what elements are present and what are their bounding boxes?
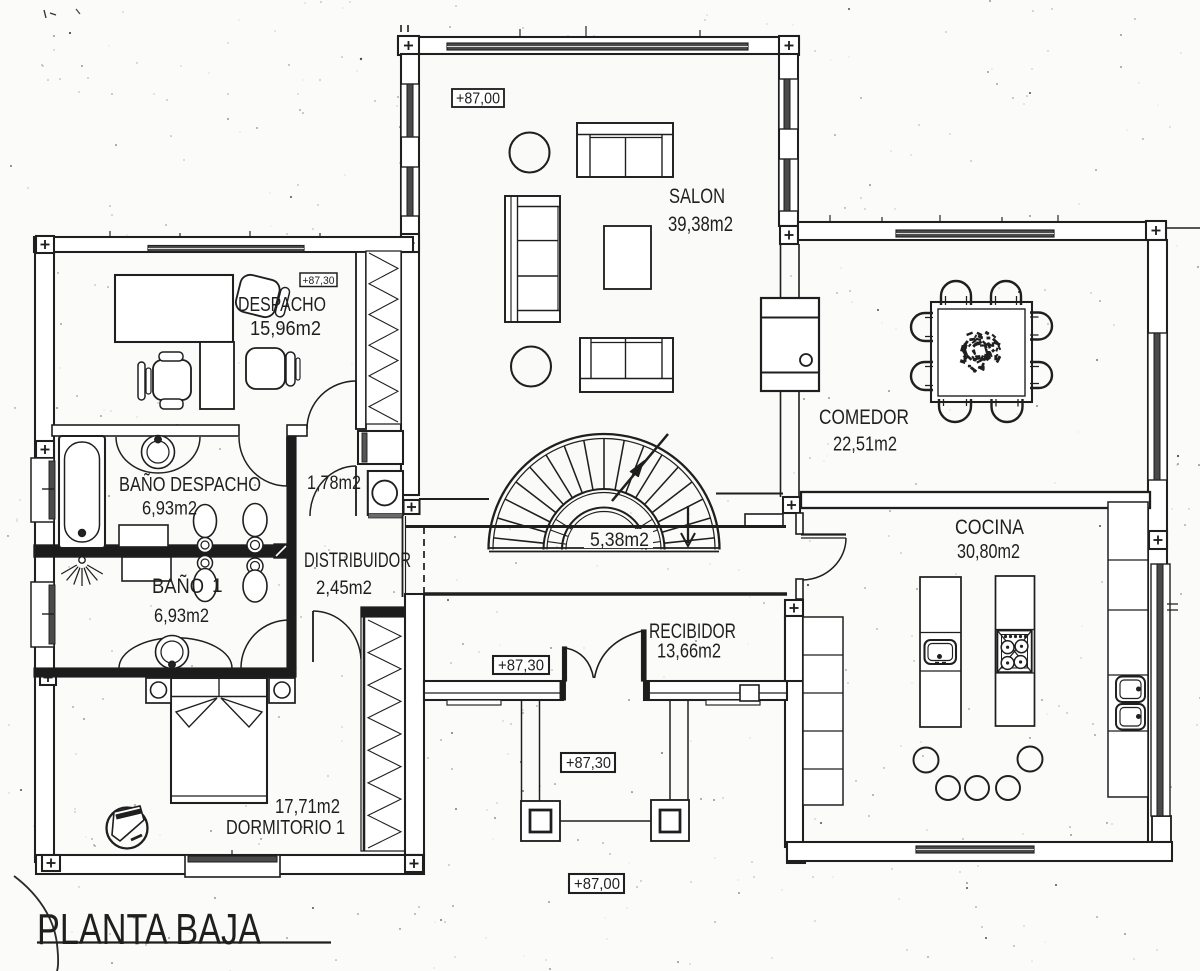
- svg-text:+87,30: +87,30: [303, 275, 335, 287]
- svg-text:1,78m2: 1,78m2: [307, 473, 361, 494]
- svg-text:17,71m2: 17,71m2: [275, 796, 340, 818]
- svg-text:6,93m2: 6,93m2: [142, 499, 197, 520]
- svg-text:5,38m2: 5,38m2: [590, 530, 649, 551]
- svg-text:COMEDOR: COMEDOR: [819, 406, 909, 429]
- svg-text:BAÑO: BAÑO: [152, 574, 204, 598]
- svg-text:DISTRIBUIDOR: DISTRIBUIDOR: [304, 548, 411, 572]
- svg-text:22,51m2: 22,51m2: [833, 434, 897, 456]
- svg-text:+87,00: +87,00: [456, 91, 500, 108]
- svg-text:SALON: SALON: [669, 185, 725, 208]
- svg-text:DORMITORIO 1: DORMITORIO 1: [226, 817, 345, 839]
- svg-text:+87,00: +87,00: [574, 876, 620, 893]
- svg-text:30,80m2: 30,80m2: [957, 541, 1020, 563]
- svg-text:COCINA: COCINA: [955, 516, 1024, 539]
- svg-text:BAÑO DESPACHO: BAÑO DESPACHO: [119, 472, 261, 496]
- svg-text:+87,30: +87,30: [566, 755, 611, 772]
- svg-text:39,38m2: 39,38m2: [668, 213, 733, 236]
- svg-text:PLANTA BAJA: PLANTA BAJA: [37, 905, 262, 954]
- svg-text:13,66m2: 13,66m2: [657, 641, 721, 663]
- svg-text:15,96m2: 15,96m2: [250, 318, 321, 340]
- svg-text:2,45m2: 2,45m2: [316, 578, 372, 599]
- svg-text:6,93m2: 6,93m2: [154, 606, 209, 627]
- svg-text:DESPACHO: DESPACHO: [238, 294, 326, 316]
- svg-text:1: 1: [212, 576, 223, 597]
- svg-text:+87,30: +87,30: [498, 658, 544, 675]
